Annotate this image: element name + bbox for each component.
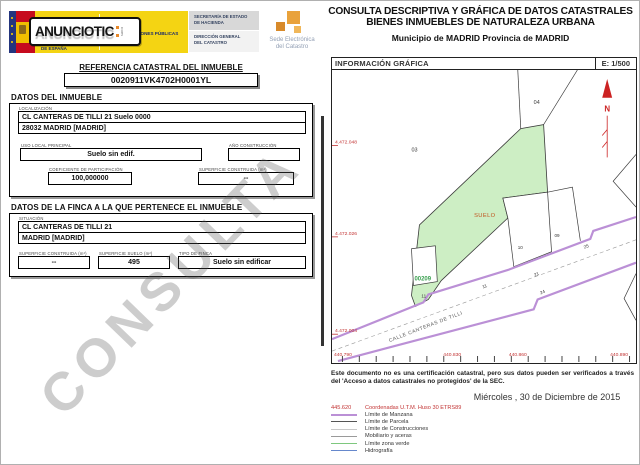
portal-09-label: 09 <box>555 233 561 238</box>
datos-inmueble-heading: DATOS DEL INMUEBLE <box>11 93 102 102</box>
legend-line-swatch <box>331 429 357 430</box>
title-line2: BIENES INMUEBLES DE NATURALEZA URBANA <box>323 17 638 28</box>
north-letter: N <box>604 105 610 114</box>
portal-10-label: 10 <box>518 245 524 250</box>
localizacion-line2: 28032 MADRID [MADRID] <box>18 122 306 134</box>
coat-of-arms-icon <box>19 25 26 34</box>
legend-item-coordenadas: 445.620 Coordenadas U.T.M. Huso 30 ETRS8… <box>331 404 561 411</box>
map-svg: N 4.472.048 4.472.026 4.472.004 440.790 … <box>332 70 636 363</box>
legend-line-swatch <box>331 414 357 417</box>
utm-x-coord: 440.790 <box>334 352 352 358</box>
legend-line-swatch <box>331 450 357 452</box>
sup-constr-value: -- <box>18 256 90 269</box>
secretaria-label: SECRETARÍA DE ESTADO DE HACIENDA <box>189 11 259 25</box>
manzana-number: 00209 <box>414 277 431 283</box>
anunciotic-text: ANUNCIOTIC <box>35 24 114 39</box>
tipo-finca-value: Suelo sin edificar <box>178 256 306 269</box>
direccion-label: DIRECCIÓN GENERAL DEL CATASTRO <box>189 31 259 45</box>
situacion-line2: MADRID [MADRID] <box>18 232 306 244</box>
north-arrow-feather <box>602 130 607 136</box>
utm-y-coord: 4.472.048 <box>335 139 357 145</box>
datos-finca-heading: DATOS DE LA FINCA A LA QUE PERTENECE EL … <box>11 203 242 212</box>
parcel-boundary <box>624 274 636 321</box>
sede-square-icon <box>276 22 285 31</box>
north-arrow-feather <box>602 142 607 148</box>
cadastral-document-page: GOBIERNO DE ESPAÑA MINISTERIO DE HACIEND… <box>0 0 640 465</box>
municipio-line: Municipio de MADRID Provincia de MADRID <box>323 33 638 43</box>
utm-x-coord: 440.830 <box>443 352 461 358</box>
info-grafica-label: INFORMACIÓN GRÁFICA <box>332 59 429 68</box>
legend-item-zona-verde: Límite zona verde <box>331 440 561 447</box>
legend-item-hidrografia: Hidrografía <box>331 447 561 454</box>
parcel-boundary <box>548 187 581 241</box>
legend-coord-sample: 445.620 <box>331 405 351 411</box>
ano-value <box>228 148 300 161</box>
north-arrow-icon <box>602 79 612 98</box>
parcel-04-label: 04 <box>534 100 540 106</box>
street-number: 21 <box>533 271 540 278</box>
sede-square-icon <box>294 26 301 33</box>
datos-inmueble-box: LOCALIZACIÓN CL CANTERAS DE TILLI 21 Sue… <box>9 103 313 197</box>
utm-y-coord: 4.472.026 <box>335 231 357 237</box>
datos-finca-box: SITUACIÓN CL CANTERAS DE TILLI 21 MADRID… <box>9 213 313 277</box>
parcel-boundary <box>544 70 578 125</box>
sede-label: Sede Electrónica del Catastro <box>263 37 321 51</box>
legend-item-parcela: Límite de Parcela <box>331 418 561 425</box>
referencia-title: REFERENCIA CATASTRAL DEL INMUEBLE <box>61 63 261 72</box>
parcel-03-label: 03 <box>411 147 417 153</box>
document-date: Miércoles , 30 de Diciembre de 2015 <box>456 392 638 402</box>
parcel-boundary <box>518 70 521 129</box>
disclaimer-text: Este documento no es una certificación c… <box>331 370 634 387</box>
coeficiente-value: 100,000000 <box>48 172 132 185</box>
legend-item-manzana: Límite de Manzana <box>331 411 561 418</box>
street-number: 25 <box>583 243 590 250</box>
superficie-value: -- <box>198 172 294 185</box>
map-scale: E: 1/500 <box>595 58 636 69</box>
utm-y-coord: 4.472.004 <box>335 328 357 334</box>
legend-item-construcciones: Límite de Construcciones <box>331 426 561 433</box>
parcel-boundary <box>613 154 636 207</box>
anunciotic-watermark-stamp: ANUNCIOTIC com <box>29 17 141 46</box>
suelo-label: SUELO <box>474 213 496 219</box>
utm-x-coord: 440.890 <box>610 352 628 358</box>
street-number: 11 <box>482 283 489 290</box>
sede-square-icon <box>287 11 300 24</box>
eu-strip <box>9 11 16 53</box>
legend-line-swatch <box>331 443 357 445</box>
sede-electronica-logo: Sede Electrónica del Catastro <box>263 9 321 53</box>
legend-line-swatch <box>331 421 357 422</box>
sup-suelo-value: 495 <box>98 256 170 269</box>
uso-value: Suelo sin edif. <box>20 148 202 161</box>
utm-x-coord: 440.860 <box>509 352 527 358</box>
portal-11-label: 11 <box>421 293 426 298</box>
cadastral-map: N 4.472.048 4.472.026 4.472.004 440.790 … <box>331 69 637 364</box>
title-line1: CONSULTA DESCRIPTIVA Y GRÁFICA DE DATOS … <box>323 6 638 17</box>
anunciotic-com: com <box>120 27 125 36</box>
map-legend: 445.620 Coordenadas U.T.M. Huso 30 ETRS8… <box>331 404 561 454</box>
page-fold-divider <box>321 116 324 346</box>
info-grafica-bar: INFORMACIÓN GRÁFICA E: 1/500 <box>331 57 637 69</box>
referencia-value: 0020911VK4702H0001YL <box>64 73 258 87</box>
street-name-label: CALLE CANTERAS DE TILLI <box>388 310 464 344</box>
street-number: 24 <box>539 289 546 296</box>
legend-item-mobiliario: Mobiliario y aceras <box>331 433 561 440</box>
document-title-block: CONSULTA DESCRIPTIVA Y GRÁFICA DE DATOS … <box>323 6 638 43</box>
street-centerline <box>332 240 636 351</box>
anunciotic-dots-icon <box>116 26 119 37</box>
legend-line-swatch <box>331 436 357 437</box>
department-boxes: SECRETARÍA DE ESTADO DE HACIENDA DIRECCI… <box>189 11 259 53</box>
